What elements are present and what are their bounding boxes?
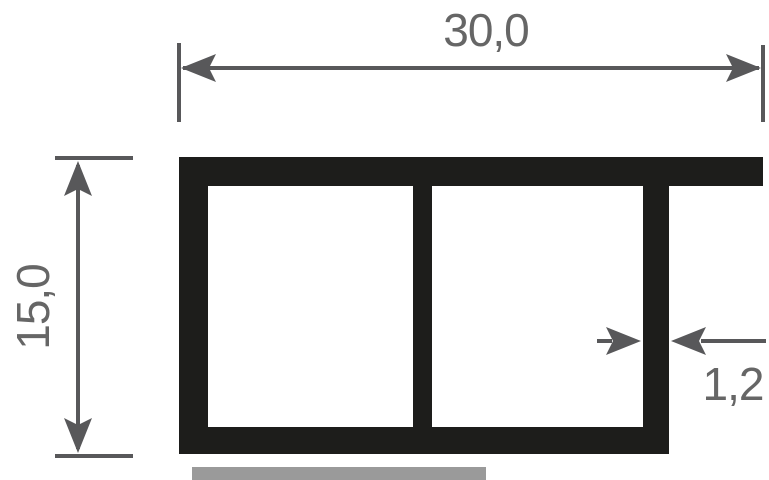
thickness-dimension [597, 327, 766, 355]
profile-cross-section-drawing [0, 0, 769, 480]
height-dimension-label: 15,0 [10, 264, 56, 350]
height-dimension [55, 158, 133, 456]
profile-left-wall [179, 157, 208, 454]
profile-top-flange [179, 157, 763, 186]
thickness-dim-arrowhead-right-icon [671, 327, 706, 355]
width-dimension-label: 30,0 [443, 7, 529, 53]
profile-bottom-wall [179, 427, 669, 454]
thickness-dimension-label: 1,2 [703, 361, 764, 407]
profile-body [179, 157, 763, 454]
profile-center-web [413, 157, 432, 454]
technical-drawing-canvas: 30,0 15,0 1,2 [0, 0, 769, 480]
profile-right-wall [643, 157, 669, 454]
ground-strip [192, 467, 486, 480]
